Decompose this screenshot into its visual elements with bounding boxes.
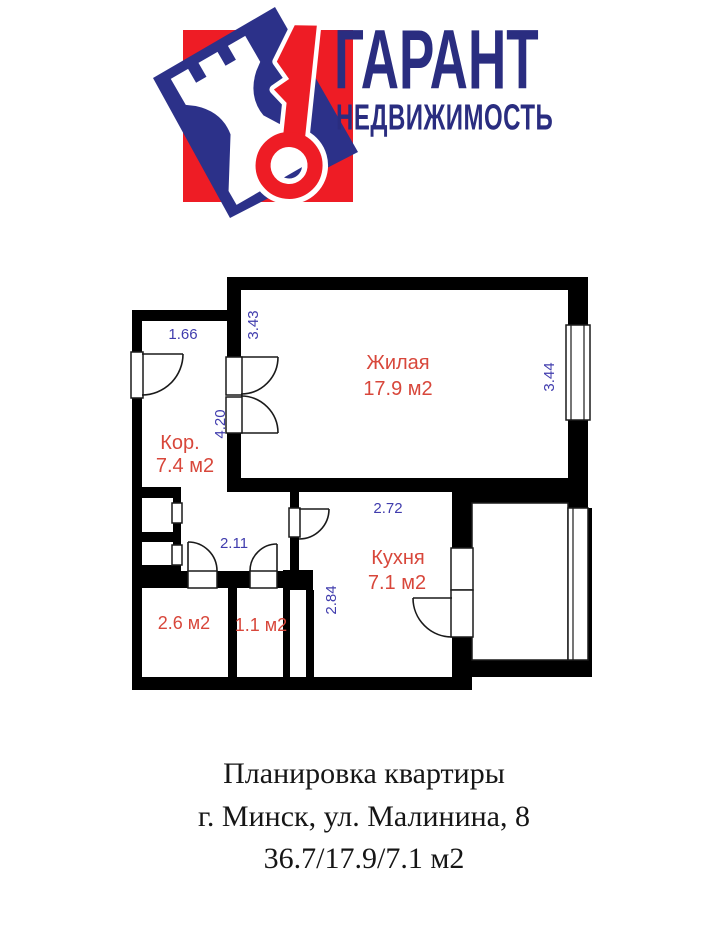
logo-subtitle: НЕДВИЖИМОСТЬ (336, 101, 553, 137)
balcony-area (472, 503, 568, 660)
caption-title: Планировка квартиры (0, 757, 728, 791)
dim-corridor-width: 1.66 (168, 326, 197, 343)
logo-title: ГАРАНТ (334, 18, 539, 103)
caption-address: г. Минск, ул. Малинина, 8 (0, 800, 728, 834)
kitchen-area: 7.1 м2 (368, 572, 426, 594)
living-room-area: 17.9 м2 (363, 378, 432, 400)
floor-plan: 1.66 3.43 4.20 3.44 2.72 2.84 2.11 Жилая… (131, 277, 592, 690)
dim-kitchen-left: 2.84 (323, 585, 340, 614)
dim-corridor-height: 4.20 (212, 409, 229, 438)
corridor-area: 7.4 м2 (156, 455, 214, 477)
toilet-area: 1.1 м2 (235, 615, 287, 635)
bathroom-area: 2.6 м2 (158, 613, 210, 633)
kitchen-name: Кухня (371, 547, 425, 569)
dim-living-right: 3.44 (541, 362, 558, 391)
dim-kitchen-top: 2.72 (373, 500, 402, 517)
logo-graphic (153, 7, 358, 218)
page: 1.66 3.43 4.20 3.44 2.72 2.84 2.11 Жилая… (0, 0, 728, 949)
balcony-glazing (568, 508, 588, 660)
living-room-name: Жилая (366, 352, 429, 374)
dim-hallway-width: 2.11 (220, 535, 248, 552)
living-window (566, 325, 590, 420)
caption-areas: 36.7/17.9/7.1 м2 (0, 842, 728, 876)
dim-living-left: 3.43 (245, 310, 262, 339)
corridor-name: Кор. (160, 432, 199, 454)
